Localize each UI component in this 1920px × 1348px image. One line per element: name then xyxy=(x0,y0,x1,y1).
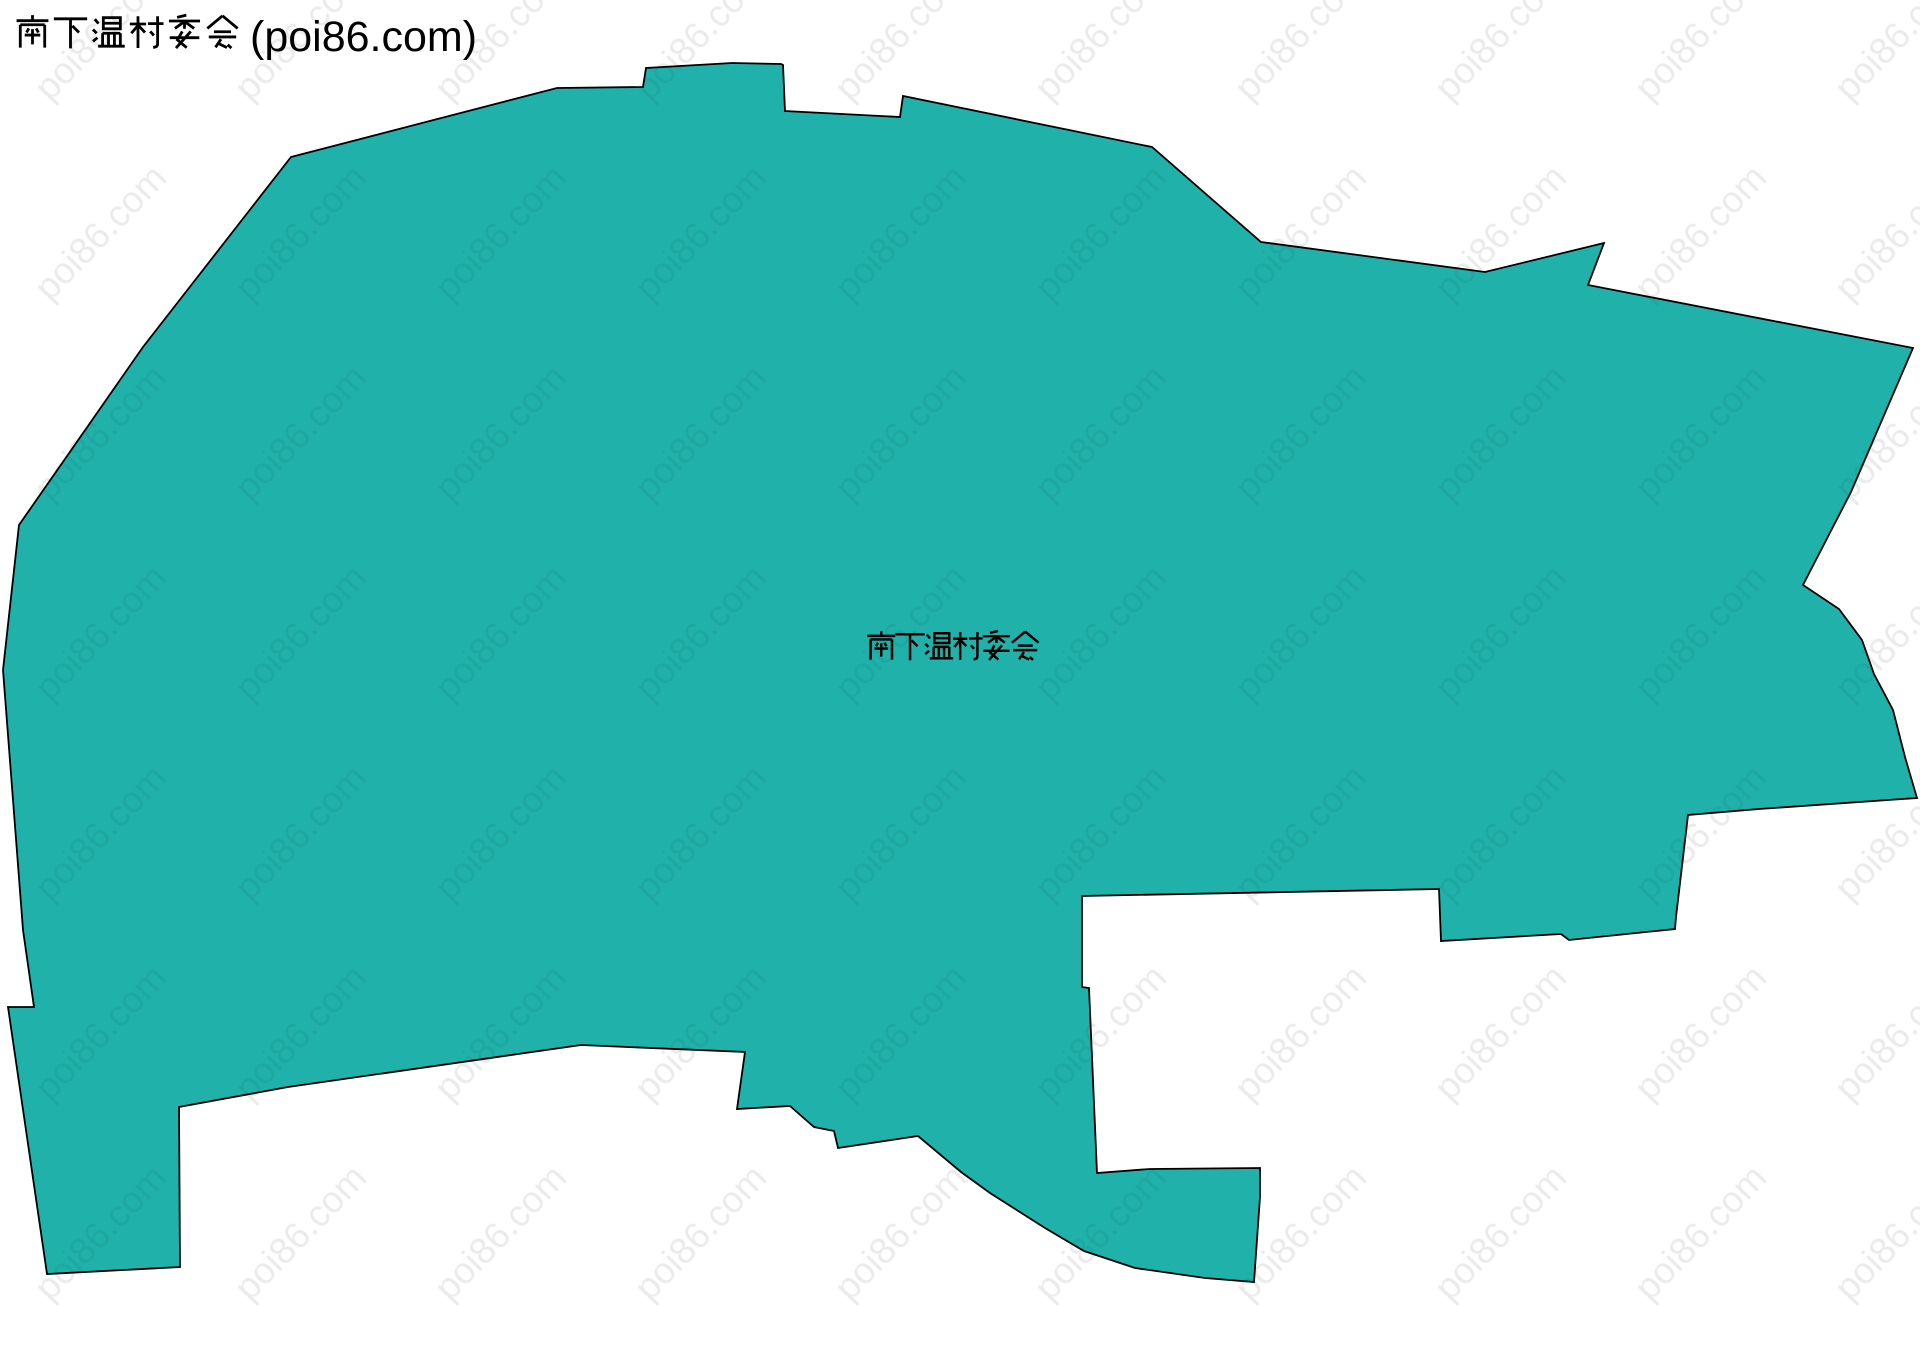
svg-text:(poi86.com): (poi86.com) xyxy=(250,13,477,61)
